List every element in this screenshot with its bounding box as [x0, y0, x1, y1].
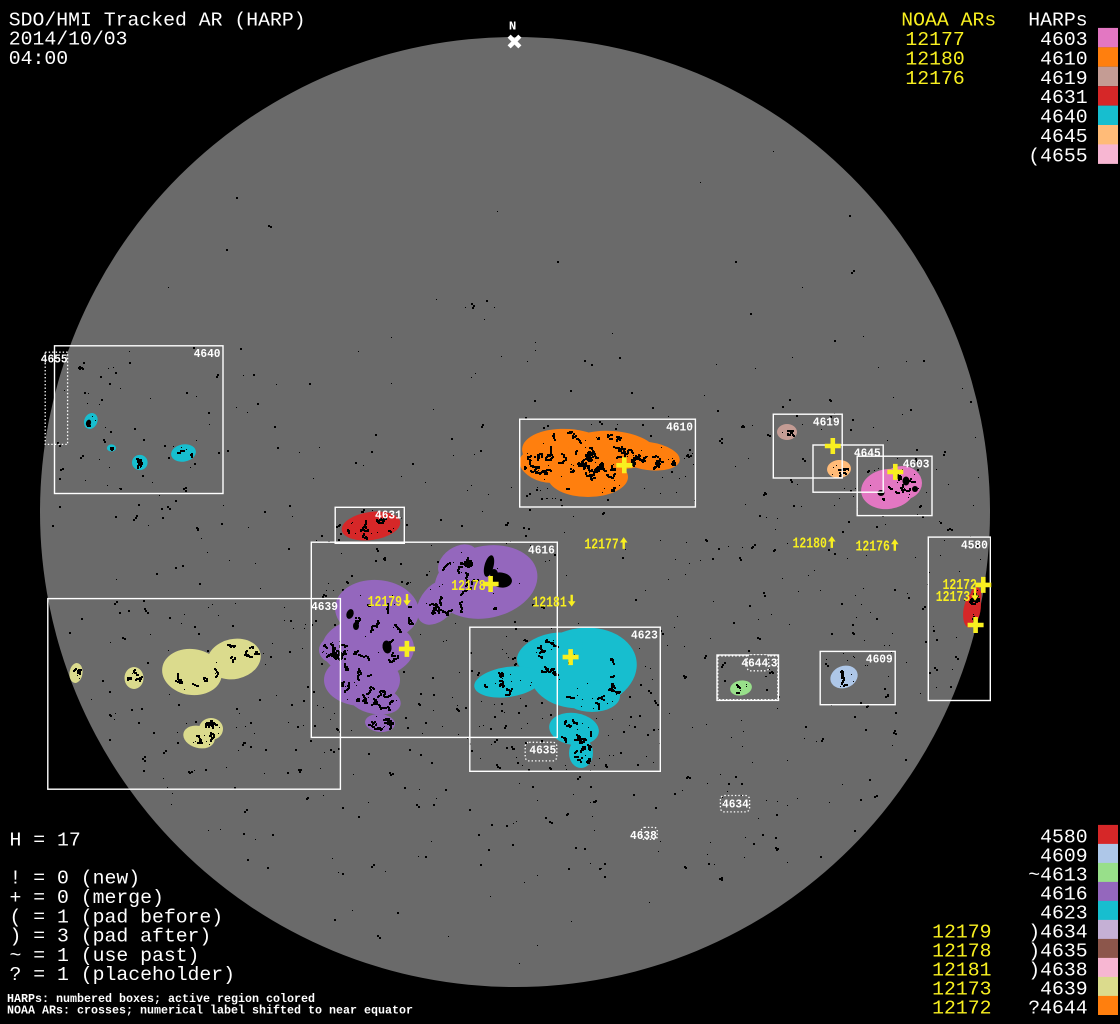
- svg-text:H = 17: H = 17: [10, 829, 81, 851]
- svg-text:4644: 4644: [741, 657, 768, 671]
- svg-text:4655: 4655: [41, 352, 68, 366]
- svg-text:4610: 4610: [666, 421, 693, 435]
- svg-text:12181: 12181: [532, 594, 566, 612]
- svg-text:12180: 12180: [793, 535, 827, 553]
- svg-text:4623: 4623: [631, 629, 658, 643]
- svg-text:4635: 4635: [529, 744, 556, 758]
- svg-text:4619: 4619: [813, 416, 840, 430]
- svg-text:4638: 4638: [630, 829, 657, 843]
- svg-text:4609: 4609: [866, 653, 893, 667]
- svg-text:4580: 4580: [961, 538, 988, 552]
- svg-text:04:00: 04:00: [9, 48, 68, 70]
- svg-text:? = 1 (placeholder): ? = 1 (placeholder): [10, 964, 236, 986]
- svg-text:12179: 12179: [368, 593, 402, 611]
- svg-text:?4644: ?4644: [1028, 997, 1087, 1019]
- svg-text:4603: 4603: [903, 458, 930, 472]
- svg-text:12176: 12176: [856, 537, 890, 555]
- svg-text:4645: 4645: [854, 446, 881, 460]
- svg-text:4634: 4634: [722, 797, 749, 811]
- svg-text:4631: 4631: [375, 509, 402, 523]
- svg-text:12172: 12172: [932, 997, 991, 1019]
- svg-text:(4655: (4655: [1028, 145, 1087, 167]
- svg-text:12176: 12176: [905, 68, 964, 90]
- svg-text:4616: 4616: [528, 544, 555, 558]
- svg-text:12173: 12173: [936, 588, 970, 606]
- svg-text:4639: 4639: [311, 600, 338, 614]
- svg-text:12177: 12177: [584, 536, 618, 554]
- svg-text:12178: 12178: [451, 577, 485, 595]
- svg-text:NOAA ARs: crosses; numerical l: NOAA ARs: crosses; numerical label shift…: [7, 1004, 413, 1018]
- svg-text:N: N: [509, 19, 516, 33]
- svg-text:4640: 4640: [194, 347, 221, 361]
